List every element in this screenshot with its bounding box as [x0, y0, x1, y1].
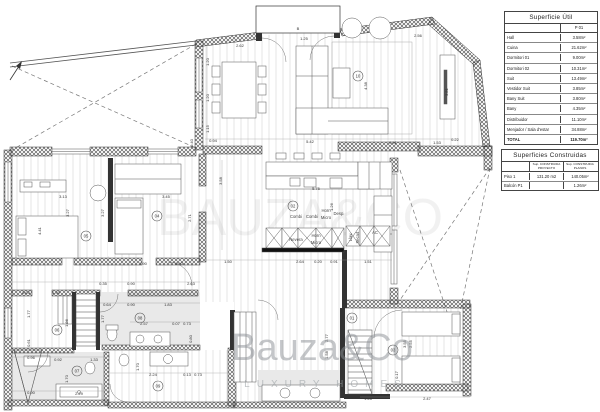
room-number: 05	[84, 234, 89, 239]
appliance-label: Combi	[290, 214, 302, 219]
row-value: 3.85m²	[561, 85, 597, 92]
row-label: Piso 1	[502, 173, 530, 180]
table-row: Cuina21.62m²	[505, 43, 597, 53]
row-value: 21.62m²	[561, 44, 597, 51]
table-title: Superficies Construidas	[502, 150, 598, 162]
table-header-row: P 01	[505, 24, 597, 33]
dimension-label: 1.90	[139, 261, 148, 266]
dimension-label: 0.63	[22, 290, 31, 295]
dimension-label: 0.92	[54, 357, 63, 362]
dimension-label: 2.63	[187, 281, 196, 286]
table-row: Dormitori 019.00m²	[505, 53, 597, 63]
appliance-label: Micro	[311, 240, 322, 245]
dimension-label: 2.64	[296, 259, 305, 264]
appliance-label: Combi	[306, 214, 318, 219]
dimension-label: 2.24	[149, 372, 158, 377]
dimension-label: 1.53	[433, 140, 442, 145]
dimension-label: 0.80	[188, 334, 193, 343]
dimension-label: 1.28	[364, 396, 373, 401]
dimension-label: 0.20	[314, 259, 323, 264]
row-value: 11.10m²	[561, 116, 597, 123]
dimension-label: 2.62	[236, 43, 245, 48]
appliance-label: Secad.	[355, 230, 360, 243]
row-label: Hall	[505, 34, 561, 41]
row-label: Cuina	[505, 44, 561, 51]
dimension-label: 0.73	[194, 372, 203, 377]
table-row: Bany Suit3.80m²	[505, 94, 597, 104]
dimension-label: 1.15	[205, 124, 210, 133]
dimension-label: 0.13	[183, 372, 192, 377]
table-title: Superficie Útil	[505, 12, 597, 24]
appliance-label: Desp.	[334, 211, 345, 216]
room-number: 08	[138, 316, 143, 321]
dimension-label: 3.27	[100, 208, 105, 217]
superficie-util-table: Superficie Útil P 01 Hall3.58m²Cuina21.6…	[504, 11, 598, 145]
room-number: 02	[291, 204, 296, 209]
appliance-label: Llav.	[348, 233, 353, 242]
dimension-label: 0.90	[127, 302, 136, 307]
row-label: Balcón P1	[502, 182, 530, 189]
row-label: Suit	[505, 75, 561, 82]
table-row: Suit13.49m²	[505, 74, 597, 84]
dimension-label: 0.64	[103, 302, 112, 307]
watermark-tagline: LUXURY HOMES	[244, 379, 408, 390]
row-value: 1.26m²	[563, 182, 596, 189]
dimension-label: 2.57	[140, 321, 149, 326]
dimension-label: 2.71	[187, 213, 192, 222]
north-arrow-icon	[10, 61, 22, 80]
dimension-label: 5.42	[306, 139, 315, 144]
dimension-label: 1.33	[90, 357, 99, 362]
dimension-label: 4.41	[37, 226, 42, 235]
dimension-label: 1.30	[52, 290, 61, 295]
room-number: 10	[356, 74, 361, 79]
room-number: 01	[350, 316, 355, 321]
table-body: Hall3.58m²Cuina21.62m²Dormitori 019.00m²…	[505, 33, 597, 144]
superficies-construidas-table: Superficies Construidas Sup. CONSTRUIDA …	[501, 149, 599, 191]
dimension-label: 1.70	[64, 374, 69, 383]
dimension-label: 0.07	[172, 321, 181, 326]
row-label: Dormitori 02	[505, 65, 561, 72]
row-value: 34.88m²	[561, 126, 597, 133]
table-row: Vestidor Suit3.85m²	[505, 84, 597, 94]
row-value: 140.05m²	[563, 173, 596, 180]
table-body: Piso 1131.20 m2140.05m²Balcón P11.26m²	[502, 172, 598, 190]
dimension-label: 2.29	[75, 391, 84, 396]
appliance-label: Horn	[321, 208, 331, 213]
dimension-label: 0.61	[26, 338, 31, 347]
table-row: Piso 1131.20 m2140.05m²	[502, 172, 598, 182]
table-row: Dormitori 0210.31m²	[505, 64, 597, 74]
row-value	[530, 185, 563, 187]
dimension-label: 1.20	[205, 57, 210, 66]
watermark-brand: Bauza&Co	[231, 327, 413, 369]
dimension-label: 1.83	[164, 302, 173, 307]
row-value: 9.00m²	[561, 54, 597, 61]
dimension-label: 2.47	[423, 396, 432, 401]
table-row: Balcón P11.26m²	[502, 182, 598, 191]
dimension-label: 1.77	[26, 309, 31, 318]
dimension-label: 0.96	[27, 355, 36, 360]
table-header-row: Sup. CONSTRUIDA PROYECTO Sup. CONSTRUIDA…	[502, 162, 598, 172]
header-blank-cell	[502, 162, 530, 171]
dimension-label: 3.81	[444, 87, 449, 96]
row-label: Dormitori 01	[505, 54, 561, 61]
dimension-label: 1.86	[64, 318, 69, 327]
dimension-label: 0.90	[27, 390, 36, 395]
row-value: 131.20 m2	[530, 173, 563, 180]
dimension-label: 2.56	[414, 33, 423, 38]
dimension-label: 5.75	[312, 186, 321, 191]
appliance-label: Nevera	[289, 237, 303, 242]
room-number: 07	[75, 369, 80, 374]
dimension-label: 0.73	[183, 321, 192, 326]
dimension-label: 1.25	[300, 36, 309, 41]
row-value: 3.80m²	[561, 95, 597, 102]
blueprint-canvas: BAUZA&CO	[0, 0, 600, 412]
dimension-label: 3.58	[218, 176, 223, 185]
dimension-label: 1.77	[100, 314, 105, 323]
header-blank-cell	[505, 24, 561, 32]
row-value: 119.70m²	[561, 136, 597, 143]
dimension-label: 0.91	[389, 140, 398, 145]
row-label: Bany Suit	[505, 95, 561, 102]
table-row: TOTAL119.70m²	[505, 135, 597, 144]
row-label: Menjador / Sala d'estar	[505, 126, 561, 133]
row-value: 10.31m²	[561, 65, 597, 72]
column-header: P 01	[561, 24, 597, 32]
dimension-label: 3.27	[65, 208, 70, 217]
dimension-label: 0.90	[175, 261, 184, 266]
row-value: 3.58m²	[561, 34, 597, 41]
dimension-label: 0.94	[209, 138, 218, 143]
dimension-label: 0.91	[330, 259, 339, 264]
table-row: Bany4.35m²	[505, 104, 597, 114]
row-label: Vestidor Suit	[505, 85, 561, 92]
dimension-label: 0.22	[451, 137, 460, 142]
row-value: 4.35m²	[561, 105, 597, 112]
room-number: 04	[155, 214, 160, 219]
dimension-label: 3.13	[59, 194, 68, 199]
appliance-label: Horn	[311, 233, 321, 238]
column-header-proyecto: Sup. CONSTRUIDA PROYECTO	[530, 162, 563, 171]
dimension-label: 1.51	[364, 259, 373, 264]
table-row: Menjador / Sala d'estar34.88m²	[505, 125, 597, 135]
dimension-label: 0.90	[127, 281, 136, 286]
column-header-planos: Sup. CONSTRUIDA PLANOS	[563, 162, 596, 171]
dimension-label: 0.35	[99, 281, 108, 286]
appliance-label: AC	[372, 230, 378, 235]
table-row: Hall3.58m²	[505, 33, 597, 43]
dimension-label: 1.20	[205, 93, 210, 102]
dimension-label: B	[297, 26, 300, 31]
dimension-label: 3.45	[162, 194, 171, 199]
room-number: 09	[156, 384, 161, 389]
appliance-label: Micro	[321, 215, 332, 220]
room-number: 06	[55, 328, 60, 333]
dimension-label: 1.70	[135, 362, 140, 371]
terrace-edge-lines	[10, 41, 196, 67]
row-value: 13.49m²	[561, 75, 597, 82]
row-label: TOTAL	[505, 136, 561, 143]
row-label: Distribuidor	[505, 116, 561, 123]
table-row: Distribuidor11.10m²	[505, 115, 597, 125]
row-label: Bany	[505, 105, 561, 112]
dimension-label: 1.50	[224, 259, 233, 264]
dimension-label: 0.40	[189, 138, 194, 147]
dimension-label: 4.38	[363, 81, 368, 90]
dimension-label: 0.17	[394, 370, 399, 379]
